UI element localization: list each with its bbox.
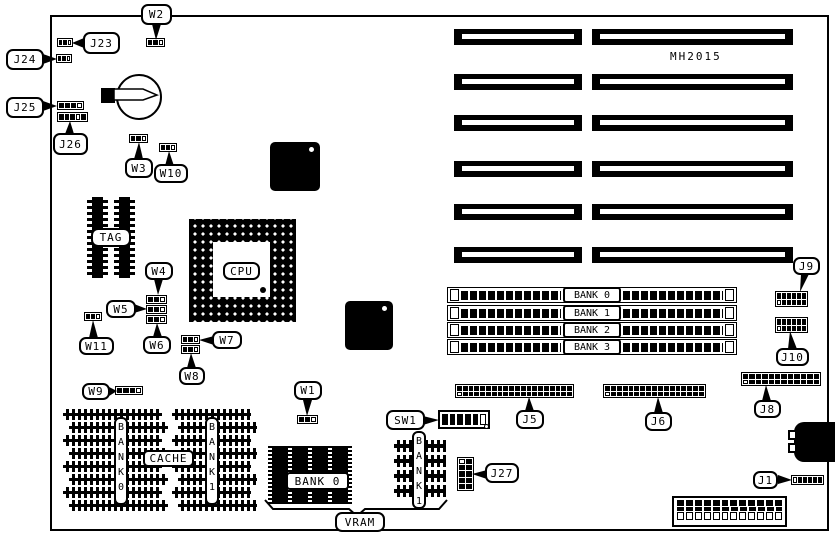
isa-slot-2-long (592, 74, 793, 90)
jumper-w4 (146, 295, 167, 304)
vram-bank0-label: BANK 0 (286, 472, 349, 490)
jumper-w1 (297, 415, 318, 424)
simm-contacts (623, 309, 723, 318)
callout-w4: W4 (145, 262, 173, 280)
simm-slot-bank0: BANK 0 (447, 287, 737, 303)
header-j9 (775, 291, 808, 307)
simm-contacts (461, 309, 561, 318)
callout-w11: W11 (79, 337, 114, 355)
header-j5 (455, 384, 574, 398)
isa-slot-3-long (592, 115, 793, 131)
qfp-chip-1 (270, 142, 320, 191)
sw1-dot (484, 424, 489, 429)
header-j26 (57, 112, 88, 122)
simm-bank-label: BANK 1 (563, 305, 621, 321)
battery (116, 74, 162, 120)
callout-j8: J8 (754, 400, 781, 418)
jumper-w7 (181, 335, 200, 344)
callout-w5: W5 (106, 300, 136, 318)
simm-contacts (461, 326, 561, 335)
callout-w6: W6 (143, 336, 171, 354)
simm-slot-bank3: BANK 3 (447, 339, 737, 355)
cache-bank0-label: BANK0 (114, 417, 128, 505)
callout-j24: J24 (6, 49, 44, 70)
callout-j6: J6 (645, 412, 672, 431)
simm-contacts (623, 343, 723, 352)
simm-slot-bank2: BANK 2 (447, 322, 737, 338)
callout-w7: W7 (212, 331, 242, 349)
simm-clip (450, 307, 459, 319)
isa-slot-1-long (592, 29, 793, 45)
simm-bank-label: BANK 3 (563, 339, 621, 355)
callout-j1: J1 (753, 471, 778, 489)
callout-j10: J10 (776, 348, 809, 366)
jumper-j24 (56, 54, 72, 63)
header-j6 (603, 384, 706, 398)
callout-w3: W3 (125, 158, 153, 178)
simm-clip (450, 324, 459, 336)
callout-j27: J27 (485, 463, 519, 483)
jumper-w11 (84, 312, 102, 321)
simm-bank-label: BANK 0 (563, 287, 621, 303)
simm-clip (725, 324, 734, 336)
header-j25 (57, 101, 84, 110)
simm-clip (450, 289, 459, 301)
simm-contacts (623, 291, 723, 300)
isa-slot-4-long (592, 161, 793, 177)
qfp-chip-2 (345, 301, 393, 350)
simm-contacts (623, 326, 723, 335)
isa-slot-4-short (454, 161, 582, 177)
simm-contacts (461, 291, 561, 300)
isa-slot-1-short (454, 29, 582, 45)
simm-clip (725, 341, 734, 353)
pin1-dot (382, 306, 387, 311)
battery-terminal (101, 88, 115, 103)
isa-slot-3-short (454, 115, 582, 131)
pin1-dot (309, 147, 314, 152)
callout-w8: W8 (179, 367, 205, 385)
simm-slot-bank1: BANK 1 (447, 305, 737, 321)
simm-contacts (461, 343, 561, 352)
dip-switch-sw1 (438, 410, 490, 429)
cache-bank1-label: BANK1 (205, 417, 219, 505)
callout-sw1: SW1 (386, 410, 425, 430)
callout-vram: VRAM (335, 512, 385, 532)
jumper-w2 (146, 38, 165, 47)
callout-w10: W10 (154, 164, 188, 183)
callout-j5: J5 (516, 410, 544, 429)
cpu-label: CPU (223, 262, 260, 280)
callout-w2: W2 (141, 4, 172, 25)
power-connector (672, 496, 787, 527)
jumper-w10 (159, 143, 177, 152)
jumper-w8 (181, 345, 200, 354)
header-j8 (741, 372, 821, 386)
isa-slot-5-long (592, 204, 793, 220)
cpu-pin1-dot (260, 287, 266, 293)
callout-j9: J9 (793, 257, 820, 275)
callout-j23: J23 (83, 32, 120, 54)
callout-w1: W1 (294, 381, 322, 400)
callout-j25: J25 (6, 97, 44, 118)
tag-label: TAG (91, 228, 131, 247)
part-number-text: MH2015 (670, 50, 722, 63)
header-j10 (775, 317, 808, 333)
simm-clip (450, 341, 459, 353)
simm-clip (725, 307, 734, 319)
vram-bank1-label: BANK1 (412, 431, 426, 509)
jumper-w5 (146, 305, 167, 314)
isa-slot-6-short (454, 247, 582, 263)
jumper-j23 (57, 38, 73, 47)
isa-slot-6-long (592, 247, 793, 263)
cache-label: CACHE (143, 450, 194, 467)
jumper-j1 (791, 475, 824, 485)
jumper-w9 (115, 386, 143, 395)
keyboard-connector (794, 422, 835, 462)
isa-slot-2-short (454, 74, 582, 90)
motherboard-diagram: MH2015 TAG CPU BANK 0 BANK 1 BANK 2 BANK… (0, 0, 835, 540)
keyboard-connector-tab (788, 443, 797, 453)
jumper-w6 (146, 315, 167, 324)
keyboard-connector-tab (788, 430, 797, 440)
jumper-w3 (129, 134, 148, 143)
callout-w9: W9 (82, 383, 110, 400)
header-j27 (457, 457, 474, 491)
callout-j26: J26 (53, 133, 88, 155)
simm-bank-label: BANK 2 (563, 322, 621, 338)
isa-slot-5-short (454, 204, 582, 220)
simm-clip (725, 289, 734, 301)
